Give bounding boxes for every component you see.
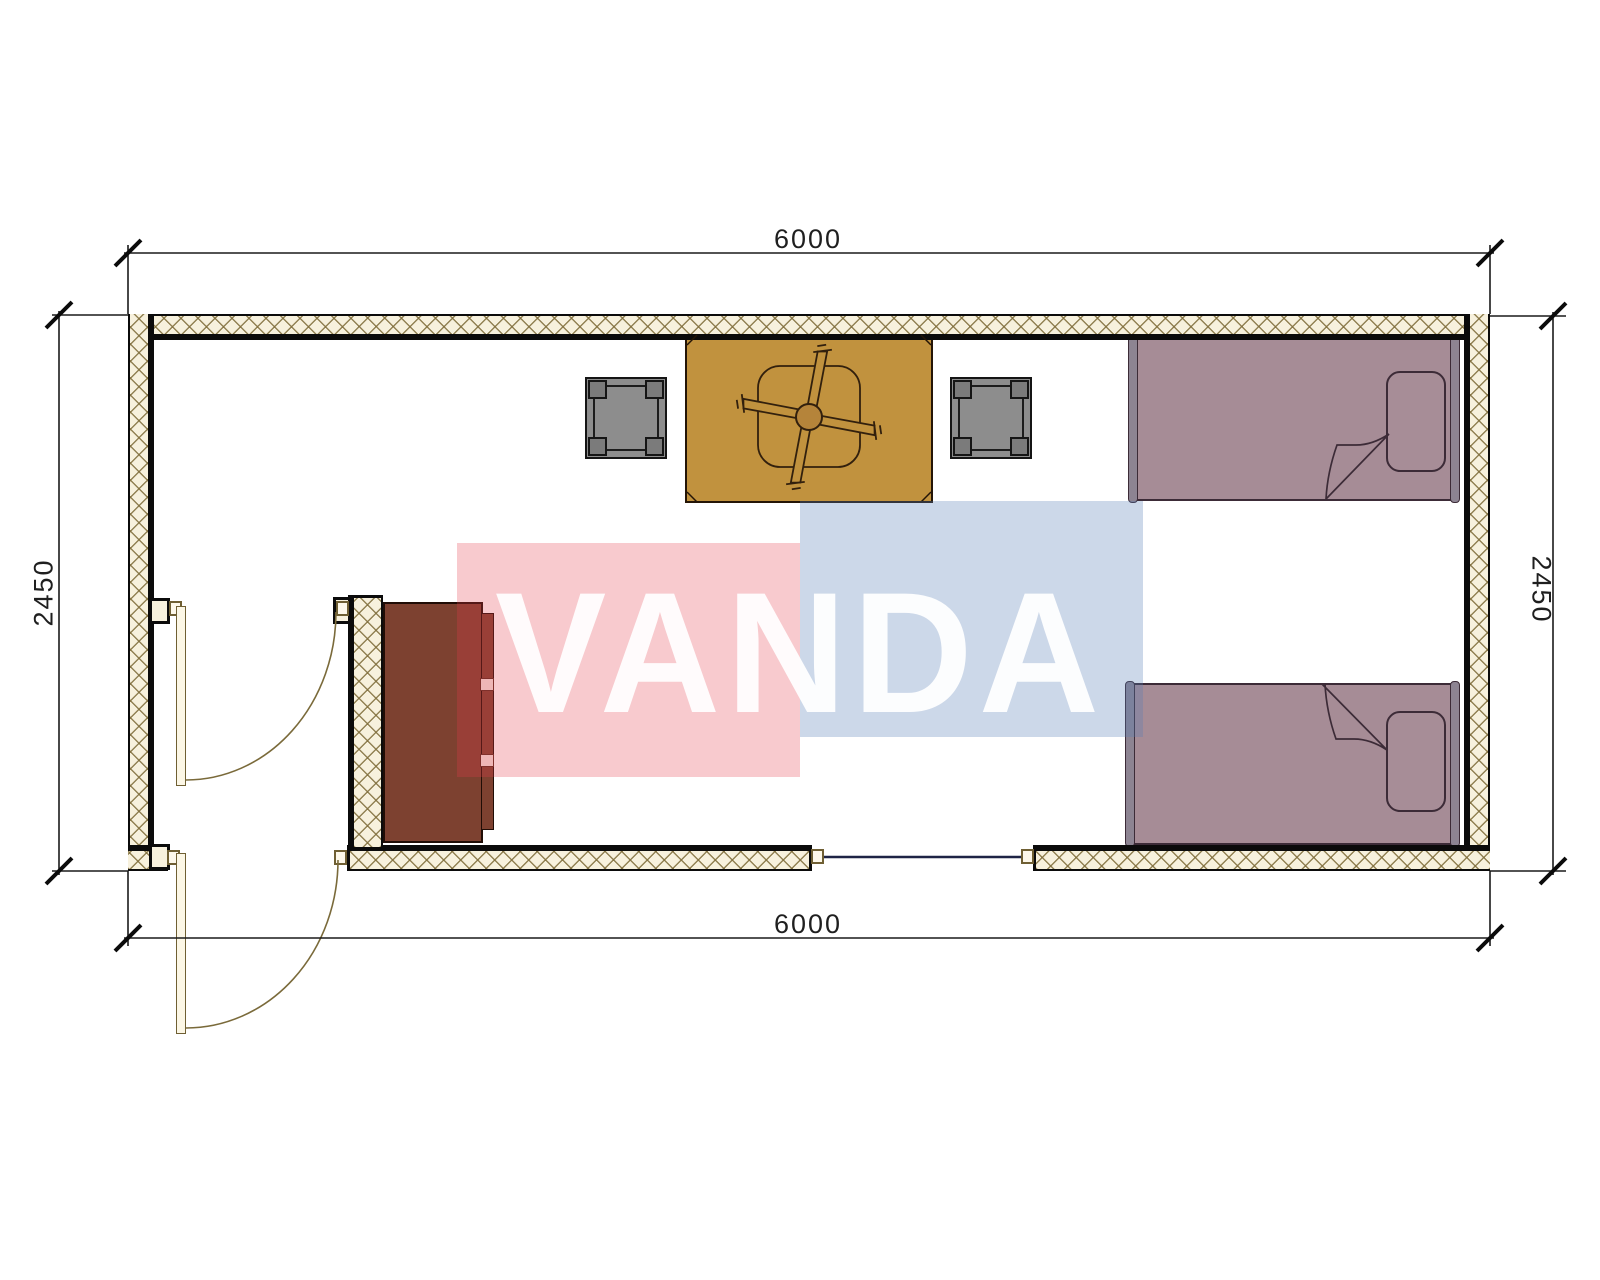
bed-lower-rail-right <box>1450 681 1460 847</box>
interior-door-swing-arc <box>186 612 336 780</box>
wall-right <box>1464 314 1490 871</box>
floor-plan: 6000 6000 2450 2450 VANDA <box>0 0 1600 1280</box>
interior-door-leaf <box>176 606 186 786</box>
window-jamb-right <box>1021 849 1034 864</box>
wall-left <box>128 314 154 871</box>
bed-upper-rail-right <box>1450 336 1460 503</box>
wall-bottom-right-segment <box>1033 845 1490 871</box>
wall-partition <box>348 595 383 847</box>
entry-door-leaf <box>176 853 186 1034</box>
interior-door-jamb-right <box>336 601 349 616</box>
dim-right-label: 2450 <box>1526 490 1557 690</box>
window-jamb-left <box>811 849 824 864</box>
dim-bottom-label: 6000 <box>708 909 908 940</box>
dim-left-label: 2450 <box>29 493 60 693</box>
stool-left-icon <box>585 377 667 459</box>
entry-door-jamb-right <box>334 850 347 865</box>
dim-top-label: 6000 <box>708 224 908 255</box>
bed-lower-pillow <box>1386 711 1446 812</box>
wall-bottom-middle-segment <box>347 845 812 871</box>
stool-right-icon <box>950 377 1032 459</box>
door-frame-notch-left-upper <box>149 598 170 624</box>
wall-top <box>128 314 1490 340</box>
watermark-text: VANDA <box>441 545 1159 760</box>
bed-upper-rail-left <box>1128 336 1138 503</box>
table <box>685 334 933 503</box>
entry-door-swing-arc <box>186 860 338 1028</box>
bed-upper-pillow <box>1386 371 1446 472</box>
